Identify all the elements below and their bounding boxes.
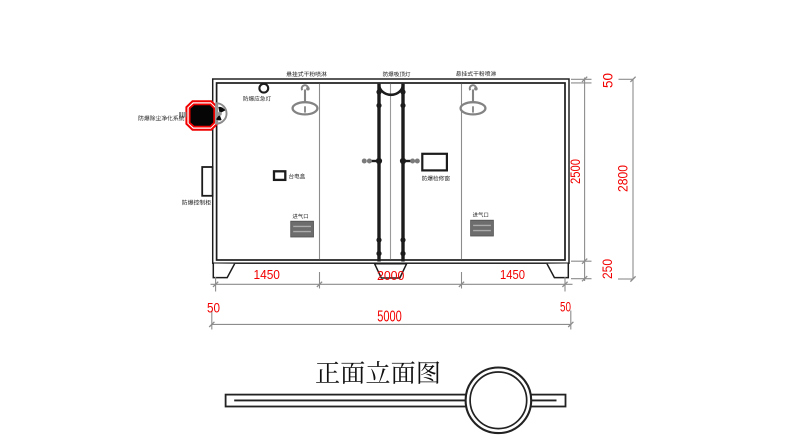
svg-text:2500: 2500 [568,159,583,184]
svg-text:1450: 1450 [500,267,525,282]
svg-text:50: 50 [207,300,220,316]
svg-text:1450: 1450 [253,267,280,282]
svg-text:250: 250 [600,259,615,279]
svg-text:50: 50 [560,299,571,315]
svg-text:2800: 2800 [616,165,631,192]
svg-text:50: 50 [601,73,616,88]
svg-text:5000: 5000 [377,309,402,326]
svg-text:2000: 2000 [377,268,405,283]
